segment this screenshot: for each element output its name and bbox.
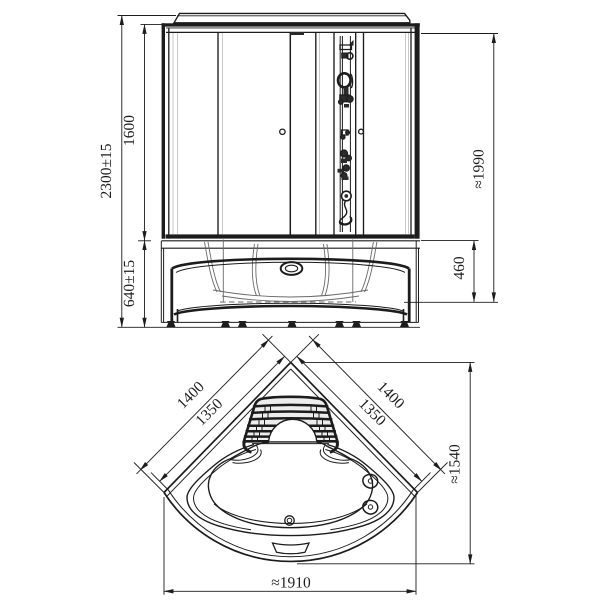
- svg-text:1600: 1600: [121, 115, 138, 146]
- svg-text:≈1910: ≈1910: [271, 575, 311, 592]
- svg-text:640±15: 640±15: [121, 260, 138, 308]
- svg-text:≈1990: ≈1990: [471, 149, 488, 189]
- svg-text:2300±15: 2300±15: [98, 143, 115, 198]
- svg-text:≈1540: ≈1540: [447, 444, 464, 484]
- svg-text:460: 460: [451, 256, 468, 280]
